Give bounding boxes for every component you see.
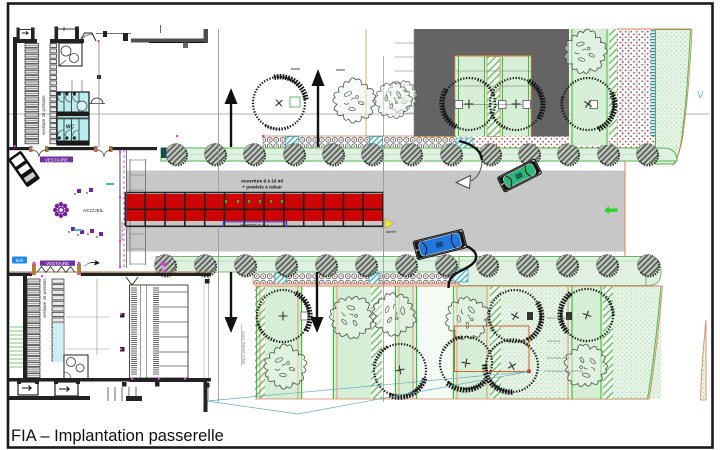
- svg-text:limite de dalle: limite de dalle: [120, 221, 124, 240]
- svg-text:PHOTO CALL: PHOTO CALL: [240, 223, 269, 228]
- svg-text:V: V: [697, 90, 704, 101]
- svg-text:FIA – Implantation passerelle: FIA – Implantation passerelle: [11, 427, 224, 445]
- svg-text:vestiaire 26 portants: vestiaire 26 portants: [41, 95, 46, 135]
- svg-text:6ml: 6ml: [16, 258, 23, 263]
- svg-text:ouverture 8 à 10 ml: ouverture 8 à 10 ml: [241, 179, 283, 184]
- svg-text:VESTIAIRE: VESTIAIRE: [45, 157, 68, 162]
- svg-text:VESTIAIRE: VESTIAIRE: [46, 261, 69, 266]
- svg-text:Atelier: Atelier: [385, 230, 397, 234]
- svg-text:vestiaire 25 portants: vestiaire 25 portants: [42, 278, 47, 318]
- svg-text:ACCUEIL: ACCUEIL: [83, 208, 104, 214]
- svg-text:WC: WC: [66, 125, 75, 131]
- svg-text:Wdr Deco: Wdr Deco: [547, 339, 561, 343]
- svg-text:2 Sunsetsquar HW total 5,5m: 2 Sunsetsquar HW total 5,5m: [544, 369, 584, 373]
- svg-text:Marro SWC Stao: Marro SWC Stao: [547, 316, 570, 320]
- svg-text:+ potelets à ruban: + potelets à ruban: [242, 185, 282, 190]
- svg-text:largeur passage 2,50m: largeur passage 2,50m: [242, 331, 246, 364]
- svg-text:Dela Rsba 23 FC: Dela Rsba 23 FC: [547, 356, 571, 360]
